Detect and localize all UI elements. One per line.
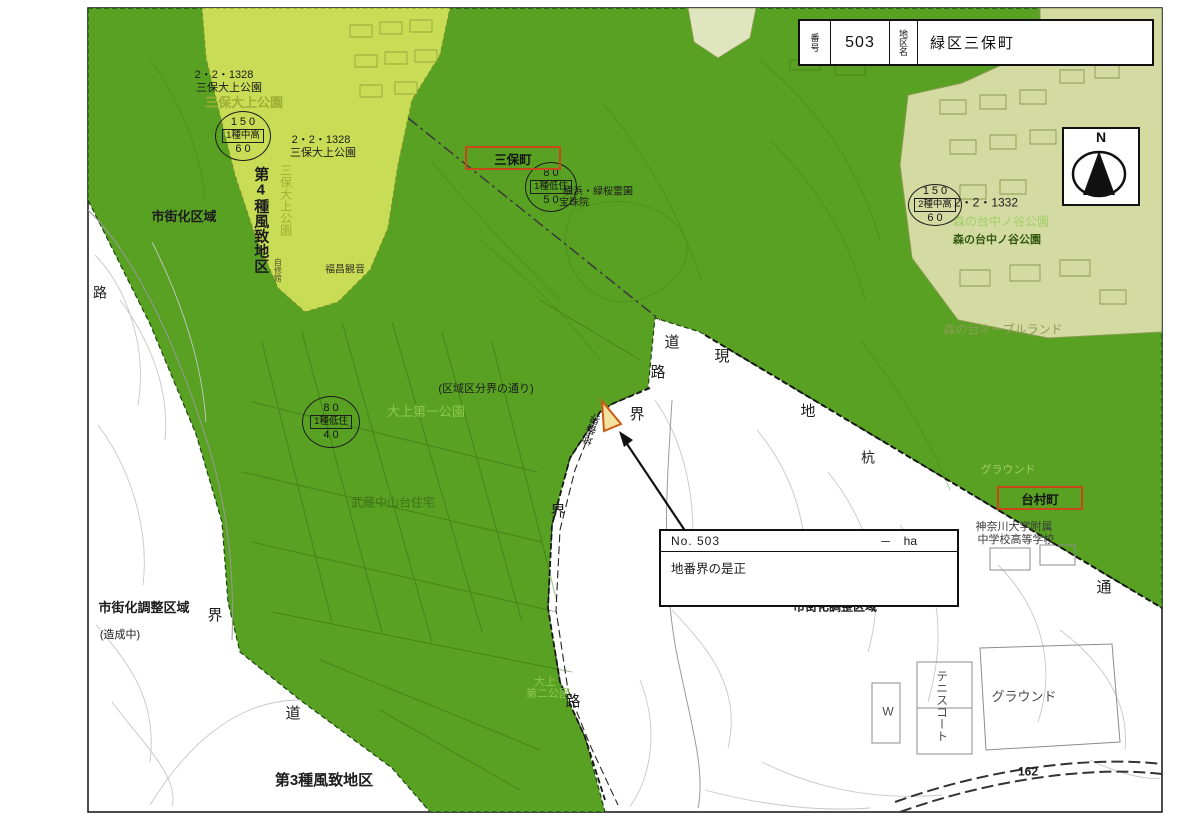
header-no-label: 番号 [800,21,831,64]
zoning-use-district: 2種中高 [914,198,956,212]
zoning-coverage: 60 [924,212,945,225]
info-box-header-row: No. 503 － ha [661,531,957,552]
zoning-use-district: 1種低住 [310,415,352,429]
zoning-fl-ratio: 150 [920,185,950,198]
info-note: 地番界の是正 [661,552,957,577]
info-no: No. 503 [671,534,720,548]
zoning-fl-ratio: 150 [228,116,258,129]
header-no-value: 503 [831,21,890,64]
map-artwork [0,0,1200,829]
zoning-coverage: 60 [232,143,253,156]
zoning-coverage: 40 [320,429,341,442]
town-box-daimura: 台村町 [997,486,1083,510]
info-area-unit: ha [904,534,917,548]
zoning-circle-2chuko: 150 2種中高 60 [908,184,962,226]
zoning-coverage: 50 [540,194,561,207]
info-area-dash: － [880,533,892,550]
zoning-circle-1teiju-40: 80 1種低住 40 [302,396,360,448]
header-district-label: 地区名 [890,21,918,64]
zoning-map-sheet: { "header": { "no_label": "番号", "no_valu… [0,0,1200,829]
town-box-miho: 三保町 [465,146,561,170]
zoning-use-district: 1種低住 [530,180,572,194]
sheet-header: 番号 503 地区名 緑区三保町 [798,19,1154,66]
north-label: N [1096,129,1106,145]
north-compass: N [1062,127,1140,206]
header-district-value: 緑区三保町 [918,21,1152,64]
correction-info-box: No. 503 － ha 地番界の是正 [659,529,959,607]
zoning-fl-ratio: 80 [320,402,341,415]
zoning-use-district: 1種中高 [222,129,264,143]
zoning-circle-1chuko: 150 1種中高 60 [215,111,271,161]
